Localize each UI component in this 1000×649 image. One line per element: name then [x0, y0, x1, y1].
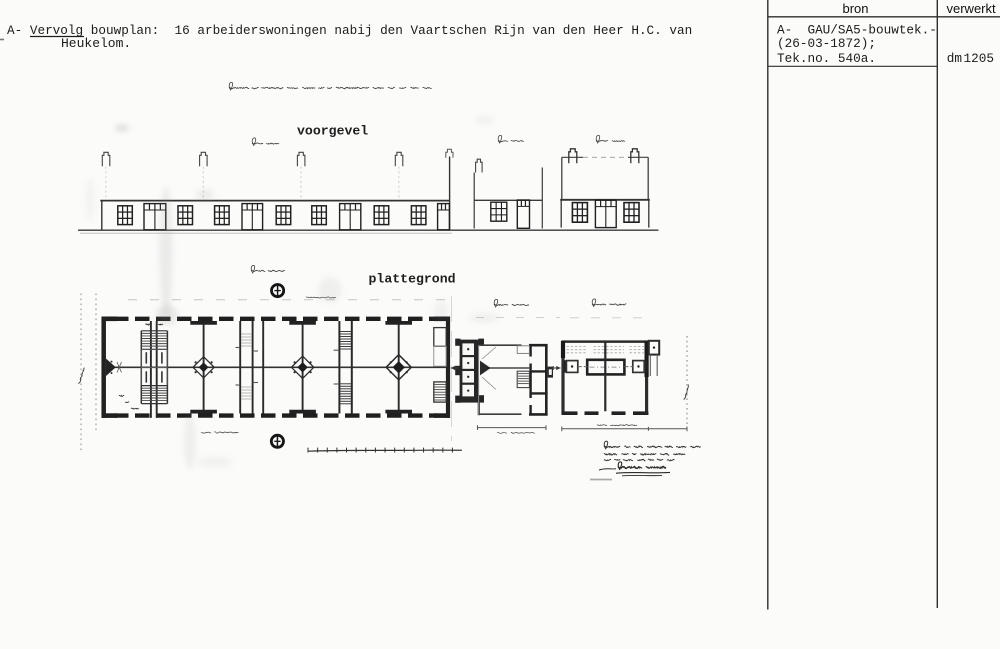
svg-text:bron: bron	[843, 1, 869, 16]
svg-text:verwerkt: verwerkt	[947, 1, 997, 16]
svg-text:voorgevel: voorgevel	[297, 124, 368, 139]
svg-text:Tek.no. 540a.: Tek.no. 540a.	[777, 51, 876, 66]
svg-text:Heukelom.: Heukelom.	[61, 36, 131, 51]
svg-text:1205: 1205	[964, 51, 994, 66]
svg-text:dm: dm	[947, 51, 962, 66]
svg-text:(26-03-1872);: (26-03-1872);	[777, 36, 876, 51]
svg-text:plattegrond: plattegrond	[369, 272, 456, 287]
